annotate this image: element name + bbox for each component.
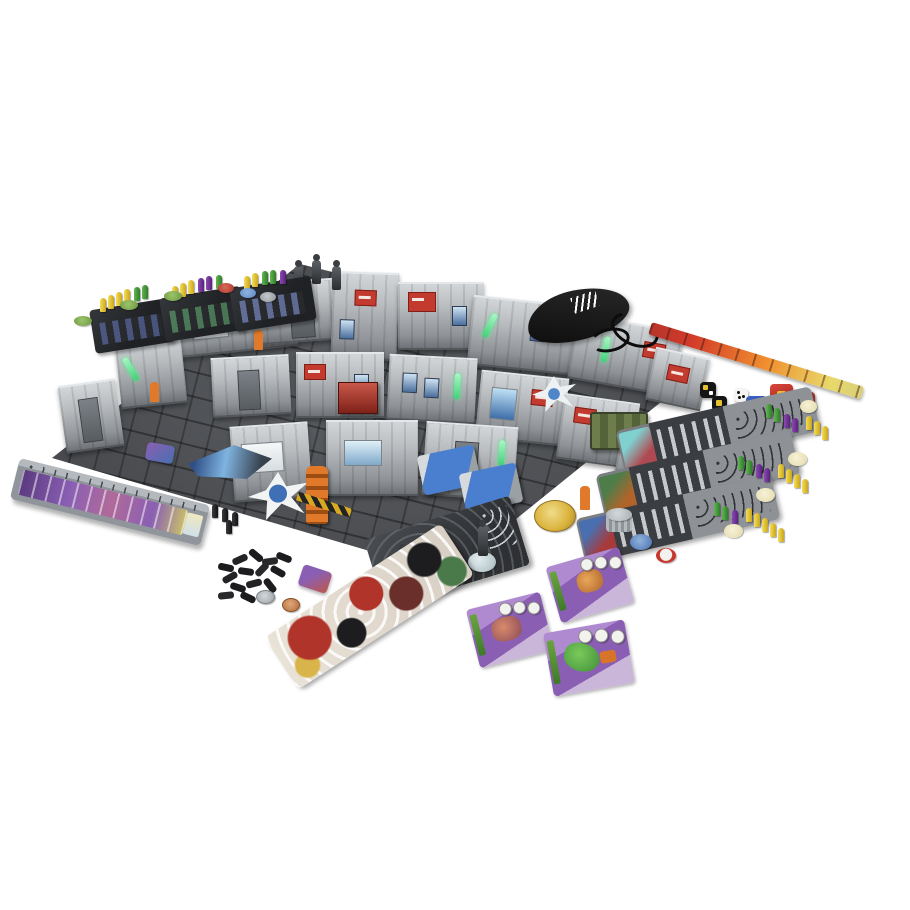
green-light bbox=[453, 373, 460, 399]
purple-peg bbox=[206, 276, 212, 290]
purple-peg bbox=[792, 418, 798, 432]
black-peg bbox=[269, 564, 286, 578]
red-ring-token bbox=[656, 548, 676, 563]
card-creature-art bbox=[574, 567, 605, 595]
yellow-peg bbox=[100, 298, 106, 312]
purple-peg bbox=[756, 464, 762, 478]
die-symbol bbox=[703, 385, 708, 390]
green-peg bbox=[766, 404, 772, 418]
black-peg bbox=[232, 512, 238, 526]
yellow-peg bbox=[794, 474, 800, 488]
green-chip bbox=[120, 300, 138, 310]
wall-poster bbox=[402, 372, 418, 393]
yellow-peg bbox=[778, 464, 784, 478]
stat-icon bbox=[607, 555, 623, 571]
yellow-peg bbox=[746, 508, 752, 522]
green-light bbox=[481, 313, 498, 339]
wall-poster bbox=[452, 306, 467, 326]
red-sign bbox=[304, 364, 326, 380]
crew-miniature bbox=[478, 526, 488, 556]
stat-icon bbox=[511, 600, 527, 616]
purple-peg bbox=[732, 510, 738, 524]
purple-peg bbox=[764, 468, 770, 482]
yellow-peg bbox=[778, 528, 784, 542]
credit-token bbox=[800, 400, 817, 413]
yellow-peg bbox=[786, 469, 792, 483]
stat-icon bbox=[593, 627, 609, 643]
die-pip bbox=[737, 391, 740, 394]
red-chip bbox=[218, 283, 234, 293]
blue-token bbox=[630, 534, 652, 550]
green-peg bbox=[722, 506, 728, 520]
black-peg bbox=[239, 591, 256, 604]
orange-figure bbox=[150, 382, 159, 402]
card-edge-label bbox=[549, 571, 567, 611]
yellow-peg bbox=[806, 416, 812, 430]
green-light bbox=[498, 440, 506, 466]
board-art bbox=[169, 301, 236, 333]
red-sign bbox=[354, 290, 377, 307]
wall-poster bbox=[424, 378, 440, 399]
black-peg bbox=[218, 591, 235, 600]
stat-icon bbox=[610, 629, 626, 645]
dice-bag bbox=[526, 284, 646, 354]
black-peg bbox=[226, 520, 232, 534]
stat-icon bbox=[497, 601, 513, 617]
yellow-peg bbox=[822, 426, 828, 440]
alien-card bbox=[545, 547, 634, 624]
green-chip bbox=[74, 316, 92, 326]
yellow-peg bbox=[108, 295, 114, 309]
wall-door bbox=[237, 370, 261, 411]
silver-token bbox=[256, 590, 275, 604]
wall-section bbox=[326, 420, 418, 496]
card-creature-art bbox=[561, 639, 603, 675]
wall-section bbox=[386, 354, 477, 425]
credit-token bbox=[788, 452, 807, 466]
purple-peg bbox=[198, 278, 204, 292]
black-peg bbox=[245, 578, 262, 589]
purple-tracker-ruler bbox=[16, 446, 236, 556]
yellow-peg bbox=[252, 273, 258, 287]
die-symbol bbox=[709, 391, 713, 395]
wall-section bbox=[58, 378, 125, 453]
copper-token bbox=[282, 598, 300, 612]
green-peg bbox=[134, 287, 140, 301]
stat-icon bbox=[526, 600, 542, 616]
green-chip bbox=[164, 291, 182, 301]
grey-chip bbox=[260, 292, 276, 302]
yellow-peg bbox=[762, 518, 768, 532]
black-peg bbox=[231, 553, 248, 566]
miniature-figure bbox=[312, 260, 321, 284]
grey-cylinder-token bbox=[606, 508, 632, 534]
tracker-body bbox=[10, 458, 210, 546]
yellow-peg bbox=[802, 479, 808, 493]
green-peg bbox=[746, 460, 752, 474]
green-peg bbox=[270, 270, 276, 284]
yellow-peg bbox=[188, 280, 194, 294]
purple-peg bbox=[784, 414, 790, 428]
green-peg bbox=[142, 285, 148, 299]
green-peg bbox=[714, 502, 720, 516]
purple-peg bbox=[280, 270, 286, 284]
black-peg bbox=[212, 504, 218, 518]
orange-panel bbox=[408, 292, 436, 312]
wall-screen bbox=[344, 440, 382, 466]
card-art-detail bbox=[599, 649, 617, 664]
board-art bbox=[99, 313, 164, 344]
green-peg bbox=[738, 456, 744, 470]
green-light bbox=[122, 356, 140, 382]
cylinder-top bbox=[606, 508, 632, 521]
yellow-peg bbox=[770, 523, 776, 537]
wall-door bbox=[78, 397, 104, 443]
credit-token bbox=[756, 488, 775, 502]
red-sign bbox=[666, 364, 691, 384]
card-edge-label bbox=[546, 640, 561, 685]
card-creature-art bbox=[489, 614, 524, 645]
gold-coin bbox=[534, 500, 576, 532]
credit-token bbox=[724, 524, 743, 538]
black-peg bbox=[254, 561, 270, 577]
yellow-peg bbox=[754, 513, 760, 527]
wall-poster bbox=[339, 319, 355, 340]
green-peg bbox=[262, 271, 268, 285]
wall-section bbox=[210, 354, 291, 418]
blue-screen bbox=[489, 387, 518, 422]
mini-progress-boards bbox=[60, 270, 290, 350]
yellow-peg bbox=[814, 421, 820, 435]
miniature-figure bbox=[332, 266, 341, 290]
green-peg bbox=[774, 408, 780, 422]
blue-chip bbox=[240, 288, 256, 298]
alien-card bbox=[543, 619, 635, 696]
card-edge-label bbox=[469, 614, 486, 656]
product-photo-scene bbox=[0, 0, 910, 910]
black-peg bbox=[238, 567, 255, 576]
red-crate bbox=[338, 382, 378, 414]
